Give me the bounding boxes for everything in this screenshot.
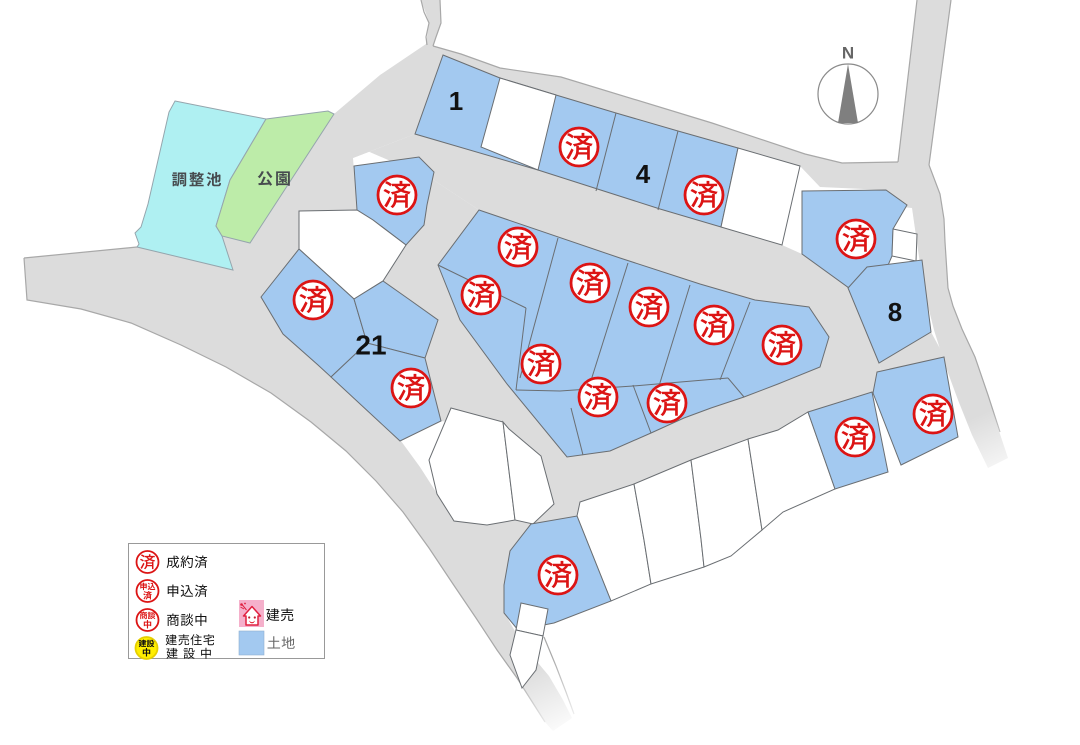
svg-text:8: 8 <box>888 297 902 327</box>
svg-text:N: N <box>842 44 854 63</box>
svg-text:21: 21 <box>355 330 386 361</box>
svg-text:1: 1 <box>449 86 463 116</box>
svg-text:4: 4 <box>636 159 651 189</box>
